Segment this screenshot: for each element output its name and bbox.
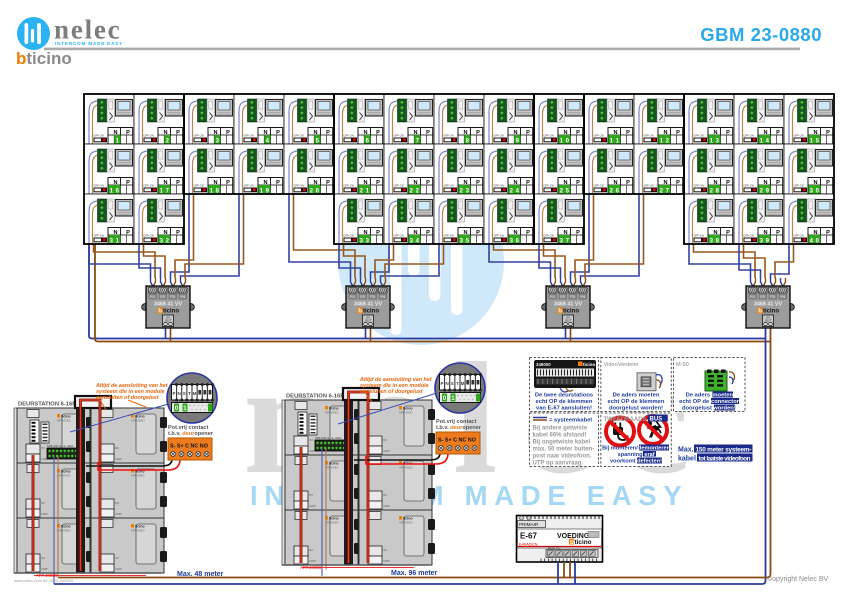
svg-text:IN: IN xyxy=(116,501,119,505)
svg-text:0: 0 xyxy=(443,395,447,402)
svg-text:S- S+ C NC NO: S- S+ C NC NO xyxy=(438,438,476,444)
svg-text:IN: IN xyxy=(384,493,387,497)
svg-text:kabel: kabel xyxy=(678,456,696,463)
svg-text:OFF ON: OFF ON xyxy=(444,184,454,188)
svg-text:OFF ON: OFF ON xyxy=(694,234,704,238)
svg-text:P1: P1 xyxy=(550,295,555,299)
svg-text:3468 41 VV: 3468 41 VV xyxy=(754,302,783,308)
svg-text:P: P xyxy=(576,130,580,136)
svg-text:ticino: ticino xyxy=(329,406,339,410)
svg-text:P1: P1 xyxy=(750,295,755,299)
svg-text:ticino: ticino xyxy=(403,406,413,410)
svg-text:OFF ON: OFF ON xyxy=(794,134,804,138)
svg-text:b: b xyxy=(358,309,362,315)
svg-text:DEURSTATION 6-16FV: DEURSTATION 6-16FV xyxy=(286,394,348,400)
svg-text:P: P xyxy=(326,180,330,186)
svg-text:OUT: OUT xyxy=(310,559,317,563)
svg-text:P: P xyxy=(376,230,380,236)
svg-text:P3: P3 xyxy=(170,295,175,299)
svg-text:P: P xyxy=(626,130,630,136)
svg-text:P4: P4 xyxy=(180,295,185,299)
svg-text:ART.VIDEO: ART.VIDEO xyxy=(131,474,145,478)
svg-text:P3: P3 xyxy=(770,295,775,299)
svg-text:OFF ON: OFF ON xyxy=(344,134,354,138)
svg-text:tot laatste videofoon: tot laatste videofoon xyxy=(699,455,751,462)
svg-text:OUT: OUT xyxy=(384,559,391,563)
svg-text:ticino: ticino xyxy=(403,516,413,520)
svg-text:IN: IN xyxy=(384,548,387,552)
svg-text:P: P xyxy=(426,230,430,236)
svg-text:bticino: bticino xyxy=(16,49,72,68)
svg-text:P: P xyxy=(173,391,176,396)
svg-text:IN: IN xyxy=(42,501,45,505)
svg-text:OFF ON: OFF ON xyxy=(494,234,504,238)
svg-text:P: P xyxy=(376,180,380,186)
svg-text:DEURSTATION 6-16FH: DEURSTATION 6-16FH xyxy=(18,402,80,408)
svg-text:P: P xyxy=(376,130,380,136)
svg-text:ticino: ticino xyxy=(363,309,379,315)
svg-text:P: P xyxy=(276,180,280,186)
svg-text:INTERCOM MADE EASY: INTERCOM MADE EASY xyxy=(55,41,123,47)
svg-text:www.nelec.com tel: 0294-49494: www.nelec.com tel: 0294-494940 xyxy=(14,578,74,583)
svg-text:ticino: ticino xyxy=(135,414,145,418)
svg-text:P: P xyxy=(776,180,780,186)
svg-text:OFF ON: OFF ON xyxy=(144,134,154,138)
svg-text:doorgelust worden!: doorgelust worden! xyxy=(609,406,663,412)
svg-text:3468 41 VV: 3468 41 VV xyxy=(554,302,583,308)
svg-text:M-50: M-50 xyxy=(676,362,689,368)
svg-text:eraf: eraf xyxy=(644,452,654,458)
svg-text:ticino: ticino xyxy=(163,309,179,315)
svg-text:kabel 66% afstand!: kabel 66% afstand! xyxy=(533,433,587,439)
svg-text:ticino: ticino xyxy=(61,469,71,473)
svg-text:E-67: E-67 xyxy=(520,532,537,541)
svg-text:P4: P4 xyxy=(780,295,785,299)
svg-text:ART.VIDEO: ART.VIDEO xyxy=(57,419,71,423)
svg-text:ticino: ticino xyxy=(329,516,339,520)
svg-text:ART.VIDEO: ART.VIDEO xyxy=(325,411,339,415)
svg-text:ART.VIDEO: ART.VIDEO xyxy=(57,529,71,533)
svg-text:Bij ongetwiste kabel: Bij ongetwiste kabel xyxy=(533,440,591,446)
svg-text:P: P xyxy=(726,230,730,236)
svg-text:defecten!: defecten! xyxy=(637,459,662,465)
svg-text:M: M xyxy=(461,381,465,386)
svg-text:moeten: moeten xyxy=(712,393,733,399)
svg-text:OFF ON: OFF ON xyxy=(244,184,254,188)
svg-text:ART.VIDEO: ART.VIDEO xyxy=(325,466,339,470)
svg-text:P: P xyxy=(226,130,230,136)
svg-text:IN: IN xyxy=(42,446,45,450)
svg-text:b: b xyxy=(158,309,162,315)
svg-text:b: b xyxy=(758,309,762,315)
svg-text:ART.VIDEO: ART.VIDEO xyxy=(399,411,413,415)
svg-text:IN: IN xyxy=(384,438,387,442)
svg-text:OFF ON: OFF ON xyxy=(394,234,404,238)
svg-text:P: P xyxy=(526,230,530,236)
svg-text:P: P xyxy=(226,180,230,186)
svg-text:P: P xyxy=(276,130,280,136)
svg-text:ticino: ticino xyxy=(329,461,339,465)
svg-text:IN: IN xyxy=(310,493,313,497)
svg-text:Max. 48 meter: Max. 48 meter xyxy=(177,571,224,578)
svg-text:OFF ON: OFF ON xyxy=(94,134,104,138)
svg-text:1: 1 xyxy=(183,405,187,412)
svg-text:346000: 346000 xyxy=(536,362,551,367)
svg-text:VideoVerdeler: VideoVerdeler xyxy=(604,362,639,368)
svg-text:P: P xyxy=(626,180,630,186)
svg-text:OFF ON: OFF ON xyxy=(394,184,404,188)
svg-text:OFF ON: OFF ON xyxy=(344,184,354,188)
svg-text:OFF ON: OFF ON xyxy=(94,184,104,188)
svg-text:P: P xyxy=(576,230,580,236)
svg-text:ticino: ticino xyxy=(583,362,595,367)
svg-text:P: P xyxy=(826,230,830,236)
svg-text:S: S xyxy=(451,381,454,386)
svg-text:P: P xyxy=(476,230,480,236)
svg-text:OFF ON: OFF ON xyxy=(294,184,304,188)
svg-text:3468 41 VV: 3468 41 VV xyxy=(354,302,383,308)
svg-text:OFF ON: OFF ON xyxy=(544,134,554,138)
svg-text:P: P xyxy=(526,130,530,136)
svg-text:ART.VIDEO: ART.VIDEO xyxy=(57,474,71,478)
svg-text:OFF ON: OFF ON xyxy=(444,134,454,138)
svg-text:P: P xyxy=(676,130,680,136)
svg-text:IN: IN xyxy=(310,438,313,442)
svg-text:IN: IN xyxy=(116,556,119,560)
svg-text:OFF ON: OFF ON xyxy=(694,134,704,138)
svg-text:ticino: ticino xyxy=(575,539,592,546)
svg-text:OFF ON: OFF ON xyxy=(594,134,604,138)
svg-text:OFF ON: OFF ON xyxy=(644,134,654,138)
svg-text:P2: P2 xyxy=(160,295,165,299)
svg-text:OFF ON: OFF ON xyxy=(94,234,104,238)
svg-text:GBM 23-0880: GBM 23-0880 xyxy=(700,24,822,45)
svg-text:connector: connector xyxy=(711,399,740,405)
svg-text:3468 41 VV: 3468 41 VV xyxy=(154,302,183,308)
svg-text:OFF ON: OFF ON xyxy=(444,234,454,238)
svg-text:©opyright Nelec BV: ©opyright Nelec BV xyxy=(767,575,829,583)
svg-text:ART.VIDEO: ART.VIDEO xyxy=(399,521,413,525)
svg-text:T: T xyxy=(188,391,191,396)
svg-text:ticino: ticino xyxy=(135,524,145,528)
svg-text:OFF ON: OFF ON xyxy=(794,234,804,238)
svg-text:IN: IN xyxy=(310,548,313,552)
svg-text:P: P xyxy=(176,130,180,136)
svg-text:P: P xyxy=(576,180,580,186)
svg-text:OFF ON: OFF ON xyxy=(544,184,554,188)
svg-text:OFF ON: OFF ON xyxy=(294,134,304,138)
svg-text:demonteren: demonteren xyxy=(638,446,671,452)
svg-text:OFF ON: OFF ON xyxy=(194,184,204,188)
svg-text:ART.VIDEO: ART.VIDEO xyxy=(131,419,145,423)
svg-text:P: P xyxy=(826,130,830,136)
svg-text:P: P xyxy=(676,180,680,186)
svg-text:echt OP de klemmen: echt OP de klemmen xyxy=(608,399,665,405)
svg-text:P: P xyxy=(426,180,430,186)
svg-text:OFF ON: OFF ON xyxy=(744,134,754,138)
svg-text:ART.VIDEO: ART.VIDEO xyxy=(399,466,413,470)
svg-text:OFF ON: OFF ON xyxy=(494,184,504,188)
svg-text:P: P xyxy=(476,130,480,136)
svg-text:P4: P4 xyxy=(580,295,585,299)
svg-text:t.b.v. deuropener: t.b.v. deuropener xyxy=(168,431,214,437)
svg-text:P1: P1 xyxy=(150,295,155,299)
svg-text:IN: IN xyxy=(42,556,45,560)
svg-text:T: T xyxy=(456,381,459,386)
svg-text:150 meter systeem-: 150 meter systeem- xyxy=(696,446,752,453)
svg-text:OFF ON: OFF ON xyxy=(644,184,654,188)
svg-text:ticino: ticino xyxy=(61,414,71,418)
svg-text:OFF ON: OFF ON xyxy=(694,184,704,188)
svg-text:P2: P2 xyxy=(360,295,365,299)
svg-text:P: P xyxy=(176,180,180,186)
svg-text:OFF ON: OFF ON xyxy=(144,234,154,238)
svg-text:OFF ON: OFF ON xyxy=(194,134,204,138)
svg-text:P: P xyxy=(176,230,180,236)
svg-text:S: S xyxy=(183,391,186,396)
svg-text:OUT: OUT xyxy=(116,512,123,516)
svg-text:P: P xyxy=(726,130,730,136)
svg-text:worden!: worden! xyxy=(712,406,736,412)
svg-text:OUT: OUT xyxy=(42,567,49,571)
svg-text:OFF ON: OFF ON xyxy=(744,184,754,188)
svg-text:P: P xyxy=(476,180,480,186)
svg-text:ticino: ticino xyxy=(563,309,579,315)
svg-text:OUT: OUT xyxy=(116,567,123,571)
svg-text:P: P xyxy=(326,130,330,136)
svg-text:M: M xyxy=(193,391,197,396)
svg-text:OUT: OUT xyxy=(116,457,123,461)
svg-text:OFF ON: OFF ON xyxy=(394,134,404,138)
svg-text:P: P xyxy=(776,130,780,136)
svg-text:OFF ON: OFF ON xyxy=(344,234,354,238)
svg-text:ART.VIDEO: ART.VIDEO xyxy=(131,529,145,533)
svg-text:t.b.v. deuropener: t.b.v. deuropener xyxy=(436,425,482,431)
svg-text:P: P xyxy=(726,180,730,186)
svg-text:P: P xyxy=(126,180,130,186)
svg-text:P3: P3 xyxy=(370,295,375,299)
svg-text:P1: P1 xyxy=(350,295,355,299)
svg-text:OFF ON: OFF ON xyxy=(244,134,254,138)
svg-text:P: P xyxy=(126,130,130,136)
svg-text:aansluiten of doorgelust: aansluiten of doorgelust xyxy=(96,395,159,401)
svg-text:= systeemkabel: = systeemkabel xyxy=(549,418,592,424)
svg-text:post naar videofoon.: post naar videofoon. xyxy=(533,454,592,460)
svg-text:De aders moeten: De aders moeten xyxy=(613,393,660,399)
svg-text:aansluiten of doorgelust: aansluiten of doorgelust xyxy=(360,389,423,395)
svg-text:UTP op aanvraag.: UTP op aanvraag. xyxy=(533,461,584,467)
svg-text:P: P xyxy=(126,230,130,236)
svg-text:Bij andere getwiste: Bij andere getwiste xyxy=(533,426,588,432)
svg-text:b: b xyxy=(558,309,562,315)
svg-text:BUS: BUS xyxy=(650,417,663,423)
svg-text:OFF ON: OFF ON xyxy=(144,184,154,188)
svg-text:OFF ON: OFF ON xyxy=(594,184,604,188)
svg-text:0: 0 xyxy=(175,405,179,412)
svg-text:nelec: nelec xyxy=(54,15,121,45)
svg-text:IN: IN xyxy=(116,446,119,450)
svg-text:van E-67 aansluiten!: van E-67 aansluiten! xyxy=(536,406,592,412)
svg-text:P: P xyxy=(526,180,530,186)
svg-text:P: P xyxy=(776,230,780,236)
svg-text:Max.: Max. xyxy=(678,447,694,454)
svg-text:P3: P3 xyxy=(570,295,575,299)
svg-text:De twee deurstations: De twee deurstations xyxy=(535,393,593,399)
svg-text:OUT: OUT xyxy=(42,512,49,516)
svg-text:OFF ON: OFF ON xyxy=(544,234,554,238)
svg-text:Max. 96 meter: Max. 96 meter xyxy=(391,570,438,577)
svg-text:E46ADCN: E46ADCN xyxy=(519,542,538,547)
svg-text:echt OP de klemmen: echt OP de klemmen xyxy=(536,399,593,405)
svg-text:ART.VIDEO: ART.VIDEO xyxy=(325,521,339,525)
svg-text:S- S+ C NC NO: S- S+ C NC NO xyxy=(170,444,208,450)
svg-text:ticino: ticino xyxy=(61,524,71,528)
svg-text:P: P xyxy=(441,381,444,386)
svg-text:b: b xyxy=(570,539,574,546)
svg-text:P: P xyxy=(426,130,430,136)
svg-text:P4: P4 xyxy=(380,295,385,299)
svg-text:OFF ON: OFF ON xyxy=(744,234,754,238)
svg-text:OUT: OUT xyxy=(384,449,391,453)
svg-text:max. 50 meter buiten-: max. 50 meter buiten- xyxy=(533,447,595,453)
svg-text:TWEEDRAADS: TWEEDRAADS xyxy=(604,417,647,423)
svg-text:1: 1 xyxy=(451,395,455,402)
svg-text:ticino: ticino xyxy=(763,309,779,315)
svg-text:OUT: OUT xyxy=(310,504,317,508)
svg-text:P2: P2 xyxy=(560,295,565,299)
svg-text:OFF ON: OFF ON xyxy=(494,134,504,138)
svg-text:OFF ON: OFF ON xyxy=(794,184,804,188)
svg-text:PRIMAIR: PRIMAIR xyxy=(519,522,539,527)
svg-text:P2: P2 xyxy=(760,295,765,299)
svg-text:ART.4000D: ART.4000D xyxy=(300,565,321,570)
svg-text:OUT: OUT xyxy=(384,504,391,508)
svg-text:P: P xyxy=(826,180,830,186)
